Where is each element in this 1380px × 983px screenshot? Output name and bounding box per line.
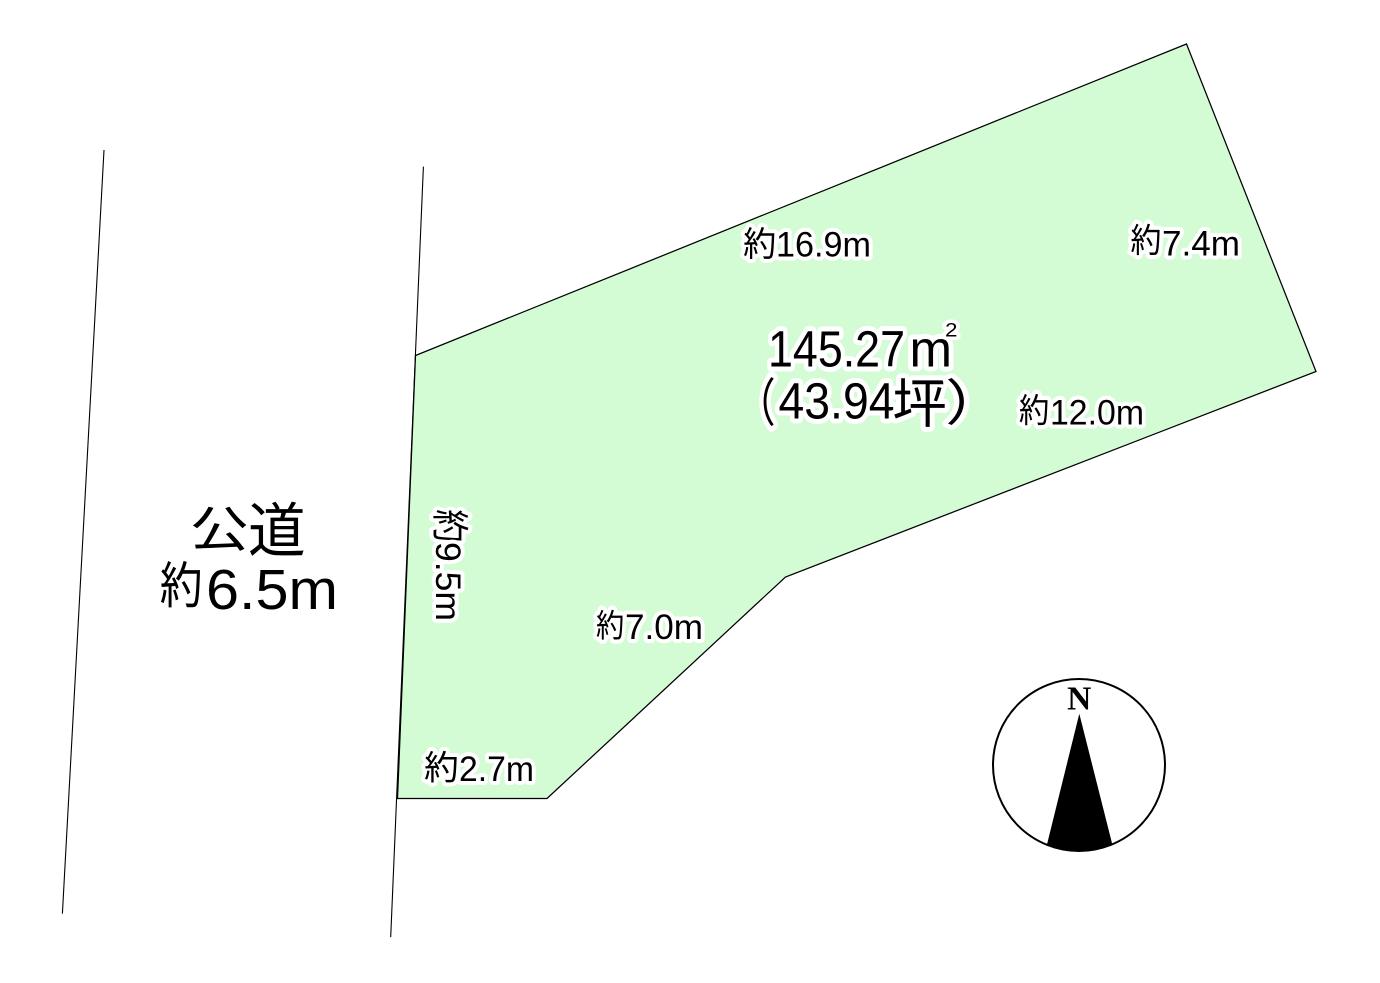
svg-text:7.4m: 7.4m xyxy=(1162,225,1240,264)
svg-text:2: 2 xyxy=(945,320,958,341)
svg-text:145.27: 145.27 xyxy=(768,321,905,378)
svg-text:6.5m: 6.5m xyxy=(206,558,338,622)
svg-text:12.0m: 12.0m xyxy=(1050,394,1144,433)
svg-text:43.94: 43.94 xyxy=(779,373,895,430)
svg-text:16.9m: 16.9m xyxy=(776,226,871,265)
svg-text:7.0m: 7.0m xyxy=(625,608,703,647)
svg-text:N: N xyxy=(1067,681,1091,718)
svg-text:2.7m: 2.7m xyxy=(459,750,534,789)
svg-text:9.5m: 9.5m xyxy=(428,542,467,621)
